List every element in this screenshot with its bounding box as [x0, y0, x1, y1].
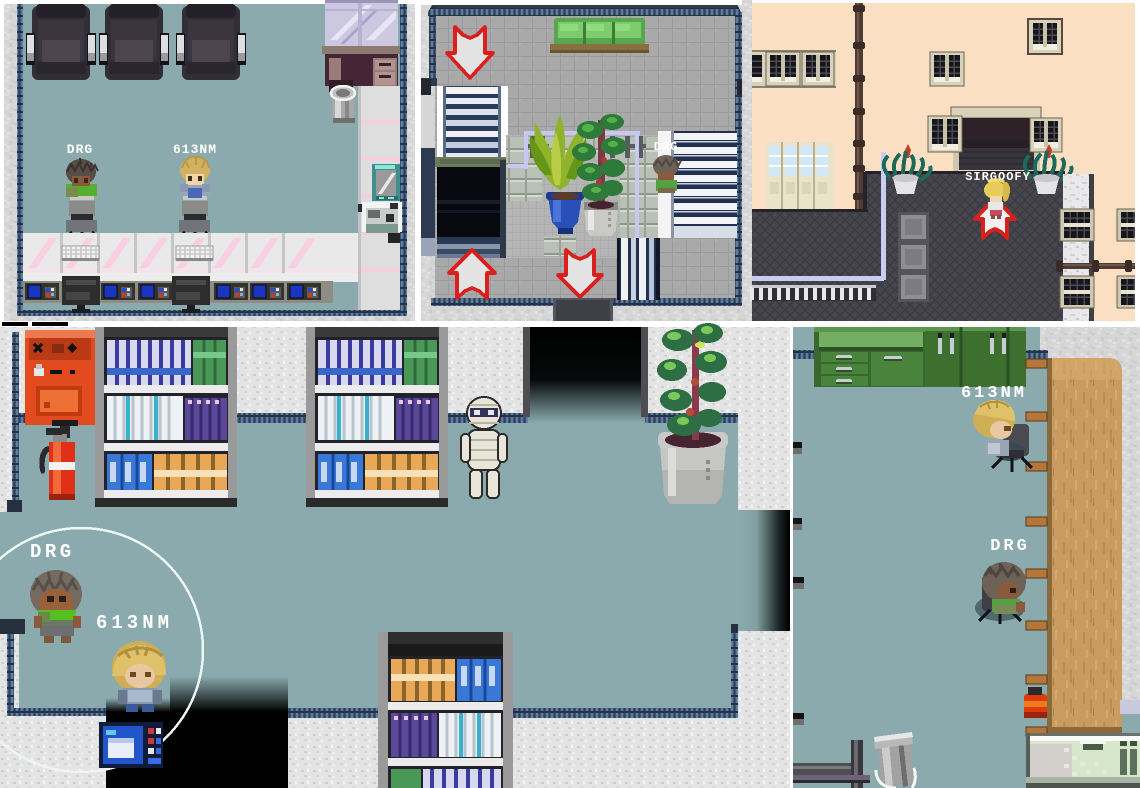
svg-text:DRG: DRG: [990, 537, 1030, 556]
svg-text:DRG: DRG: [30, 541, 75, 563]
svg-text:613NM: 613NM: [173, 142, 217, 157]
svg-text:DRG: DRG: [654, 140, 679, 154]
svg-text:DRG: DRG: [67, 142, 93, 157]
svg-text:613NM: 613NM: [96, 612, 173, 634]
